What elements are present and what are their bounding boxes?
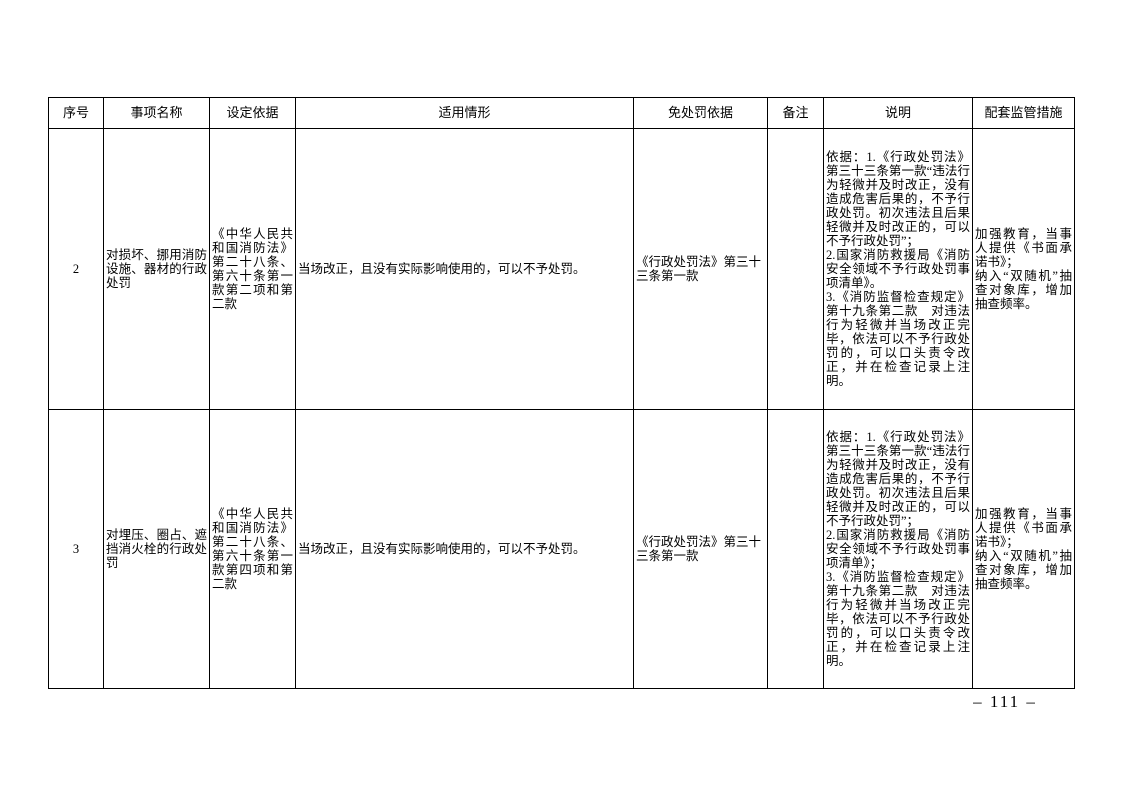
penalty-exemption-table: 序号 事项名称 设定依据 适用情形 免处罚依据 备注 说明 配套监管措施 2 对… [48, 97, 1075, 689]
cell-explanation: 依据：1.《行政处罚法》第三十三条第一款“违法行为轻微并及时改正，没有造成危害后… [824, 410, 973, 689]
header-explanation: 说明 [824, 98, 973, 129]
cell-seq: 2 [49, 129, 104, 410]
cell-measures: 加强教育，当事人提供《书面承诺书》； 纳入“双随机”抽查对象库，增加抽查频率。 [973, 129, 1075, 410]
header-basis: 设定依据 [210, 98, 296, 129]
cell-basis: 《中华人民共和国消防法》第二十八条、第六十条第一款第四项和第二款 [210, 410, 296, 689]
cell-remark [768, 129, 824, 410]
table-header-row: 序号 事项名称 设定依据 适用情形 免处罚依据 备注 说明 配套监管措施 [49, 98, 1075, 129]
header-situation: 适用情形 [296, 98, 634, 129]
cell-item-name: 对损坏、挪用消防设施、器材的行政处罚 [104, 129, 210, 410]
cell-situation: 当场改正，且没有实际影响使用的，可以不予处罚。 [296, 129, 634, 410]
header-measures: 配套监管措施 [973, 98, 1075, 129]
header-exemption-basis: 免处罚依据 [634, 98, 768, 129]
header-item-name: 事项名称 [104, 98, 210, 129]
cell-remark [768, 410, 824, 689]
header-seq: 序号 [49, 98, 104, 129]
cell-exemption-basis: 《行政处罚法》第三十三条第一款 [634, 129, 768, 410]
cell-situation: 当场改正，且没有实际影响使用的，可以不予处罚。 [296, 410, 634, 689]
cell-basis: 《中华人民共和国消防法》第二十八条、第六十条第一款第二项和第二款 [210, 129, 296, 410]
cell-item-name: 对埋压、圈占、遮挡消火栓的行政处罚 [104, 410, 210, 689]
page-number: – 111 – [930, 692, 1080, 712]
document-page: 序号 事项名称 设定依据 适用情形 免处罚依据 备注 说明 配套监管措施 2 对… [0, 0, 1122, 793]
cell-seq: 3 [49, 410, 104, 689]
table-row: 3 对埋压、圈占、遮挡消火栓的行政处罚 《中华人民共和国消防法》第二十八条、第六… [49, 410, 1075, 689]
cell-measures: 加强教育，当事人提供《书面承诺书》； 纳入“双随机”抽查对象库，增加抽查频率。 [973, 410, 1075, 689]
cell-exemption-basis: 《行政处罚法》第三十三条第一款 [634, 410, 768, 689]
cell-explanation: 依据：1.《行政处罚法》第三十三条第一款“违法行为轻微并及时改正，没有造成危害后… [824, 129, 973, 410]
header-remark: 备注 [768, 98, 824, 129]
table-row: 2 对损坏、挪用消防设施、器材的行政处罚 《中华人民共和国消防法》第二十八条、第… [49, 129, 1075, 410]
